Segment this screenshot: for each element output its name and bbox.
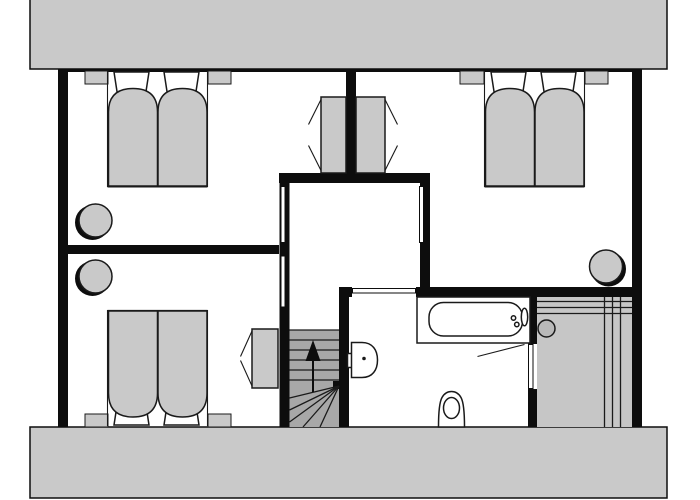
sauna-floor	[537, 297, 632, 427]
door-sauna	[529, 345, 534, 389]
duvet-right	[158, 89, 207, 187]
sauna	[537, 297, 632, 427]
floor-plan-drawing: architectural floor plan, top-down view,…	[0, 0, 700, 500]
basin-drain-dot	[362, 357, 366, 361]
roof-slope-top	[30, 0, 667, 69]
nightstand	[208, 414, 231, 427]
nightstand	[208, 71, 231, 84]
wardrobe-body	[356, 97, 385, 173]
bathtub-basin	[429, 303, 523, 337]
partition-top-bedrooms	[346, 70, 356, 176]
sauna-heater	[538, 320, 555, 337]
duvet-left	[109, 311, 158, 417]
duvet-left	[109, 89, 158, 187]
right-bedroom-bottom-wall	[416, 287, 632, 297]
duvet-left	[486, 89, 535, 187]
door-upper-left-bedroom	[281, 187, 285, 243]
exterior-wall-right	[632, 69, 642, 427]
duvet-right	[158, 311, 207, 417]
nightstand	[85, 71, 108, 84]
washbasin	[348, 343, 378, 378]
door-lower-left-bedroom	[281, 256, 285, 307]
duvet-right	[535, 89, 584, 187]
nightstand	[460, 71, 484, 84]
nightstand	[85, 414, 108, 427]
floor-plan-page: architectural floor plan, top-down view,…	[0, 0, 700, 500]
wardrobe-body	[252, 329, 278, 388]
partition-left-bedrooms	[66, 245, 279, 254]
toilet-seat	[444, 398, 460, 419]
chair	[590, 250, 623, 283]
tap-dot	[515, 322, 519, 326]
tub-fitting	[521, 308, 527, 326]
door-right-bedroom	[420, 187, 424, 243]
toilet	[439, 392, 465, 428]
bathtub	[417, 297, 530, 343]
roof-slope-bottom	[30, 427, 667, 498]
nightstand	[585, 71, 608, 84]
staircase	[290, 330, 340, 427]
tap-dot	[511, 316, 515, 320]
chair	[79, 260, 112, 293]
door-bathroom	[353, 289, 416, 294]
wardrobe-body	[321, 97, 346, 173]
bath-sauna-wall-lower	[528, 389, 537, 427]
chair	[79, 204, 112, 237]
